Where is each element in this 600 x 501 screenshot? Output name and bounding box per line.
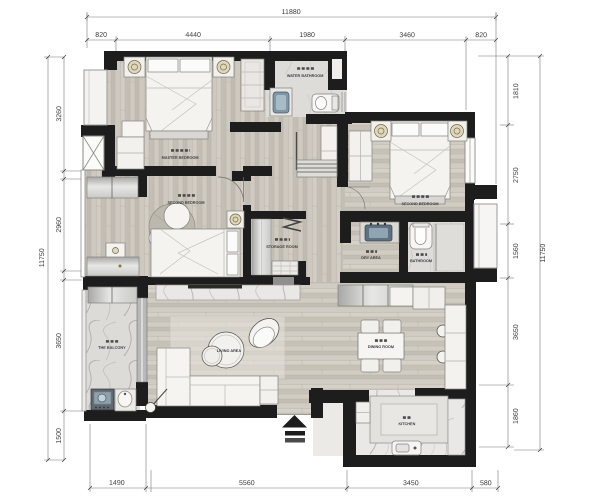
svg-text:1560: 1560 — [513, 243, 520, 259]
svg-text:1500: 1500 — [56, 428, 63, 444]
svg-text:DINING ROOM: DINING ROOM — [368, 345, 394, 349]
svg-text:WATER BATHROOM: WATER BATHROOM — [287, 74, 324, 78]
svg-text:11750: 11750 — [39, 248, 46, 267]
svg-text:3460: 3460 — [399, 32, 415, 39]
svg-text:1860: 1860 — [513, 408, 520, 424]
svg-text:5560: 5560 — [239, 480, 255, 487]
svg-text:3450: 3450 — [403, 480, 419, 487]
svg-text:SECOND BEDROOM: SECOND BEDROOM — [167, 201, 204, 205]
svg-text:STORAGE ROOM: STORAGE ROOM — [266, 245, 298, 249]
svg-text:KITCHEN: KITCHEN — [398, 422, 415, 426]
svg-text:4440: 4440 — [185, 32, 201, 39]
svg-text:MASTER BEDROOM: MASTER BEDROOM — [162, 156, 199, 160]
svg-text:1810: 1810 — [513, 83, 520, 99]
svg-text:3650: 3650 — [513, 324, 520, 340]
svg-text:DRY AREA: DRY AREA — [361, 256, 381, 260]
svg-text:LIVING AREA: LIVING AREA — [217, 349, 242, 353]
svg-text:580: 580 — [480, 480, 492, 487]
svg-text:2750: 2750 — [513, 167, 520, 183]
svg-text:11750: 11750 — [540, 244, 547, 263]
svg-text:1980: 1980 — [299, 32, 315, 39]
svg-text:3650: 3650 — [56, 333, 63, 349]
svg-text:1490: 1490 — [109, 480, 125, 487]
svg-text:2960: 2960 — [56, 217, 63, 233]
svg-text:BATHROOM: BATHROOM — [410, 259, 432, 263]
svg-text:820: 820 — [475, 32, 487, 39]
svg-text:SECOND BEDROOM: SECOND BEDROOM — [401, 202, 438, 206]
svg-text:3260: 3260 — [56, 106, 63, 122]
svg-text:11880: 11880 — [282, 9, 301, 16]
svg-text:THE BALCONY: THE BALCONY — [98, 346, 126, 350]
svg-text:820: 820 — [95, 32, 107, 39]
